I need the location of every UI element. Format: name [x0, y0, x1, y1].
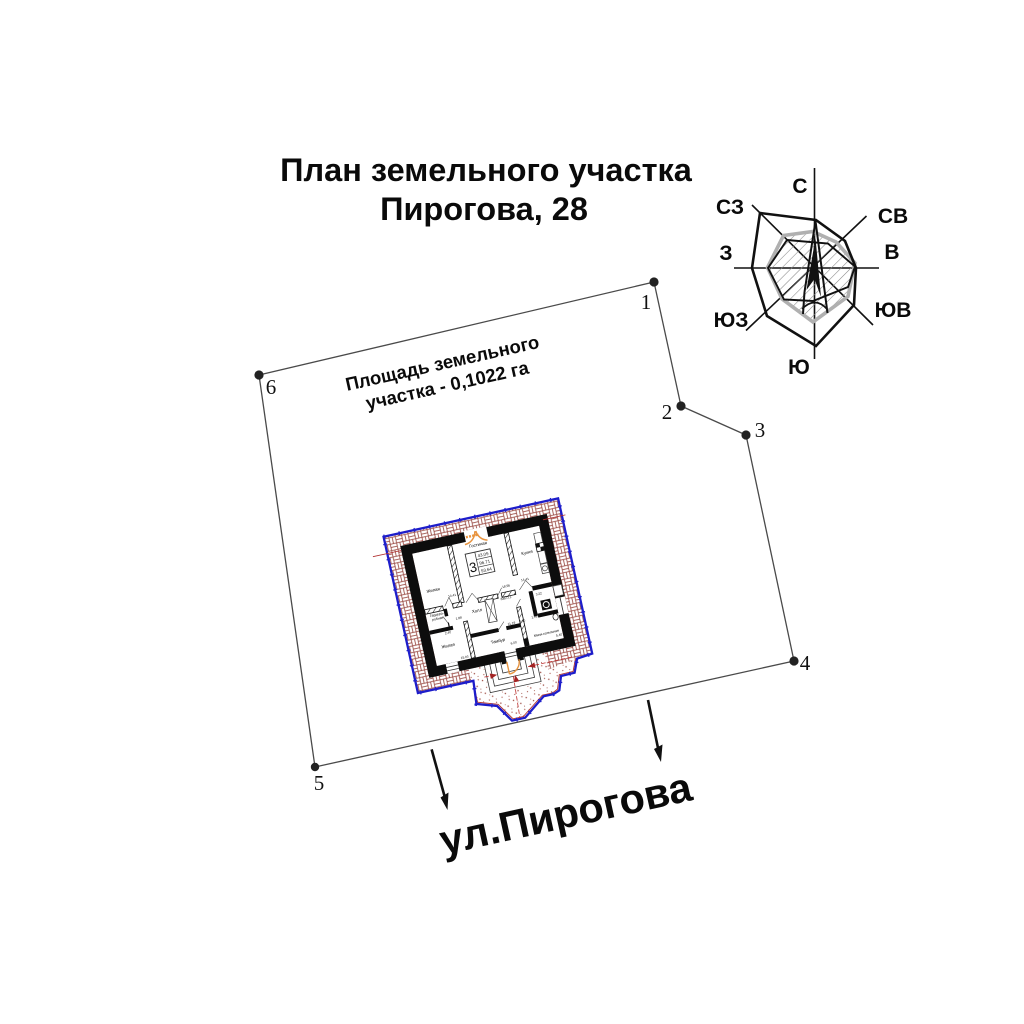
svg-text:ЮВ: ЮВ	[875, 299, 912, 322]
svg-text:З: З	[719, 242, 732, 265]
svg-text:1: 1	[641, 290, 652, 314]
svg-text:С: С	[792, 175, 807, 198]
svg-text:Пирогова, 28: Пирогова, 28	[380, 191, 588, 227]
svg-text:5: 5	[314, 771, 325, 795]
svg-text:СЗ: СЗ	[716, 196, 744, 219]
svg-text:4: 4	[800, 651, 811, 675]
svg-text:ЮЗ: ЮЗ	[714, 309, 749, 332]
svg-text:СВ: СВ	[878, 205, 908, 228]
svg-text:План земельного участка: План земельного участка	[280, 152, 693, 188]
svg-text:В: В	[884, 241, 899, 264]
svg-text:Ю: Ю	[788, 356, 810, 379]
svg-text:2: 2	[662, 400, 673, 424]
svg-text:6: 6	[266, 375, 277, 399]
svg-text:3: 3	[755, 418, 766, 442]
